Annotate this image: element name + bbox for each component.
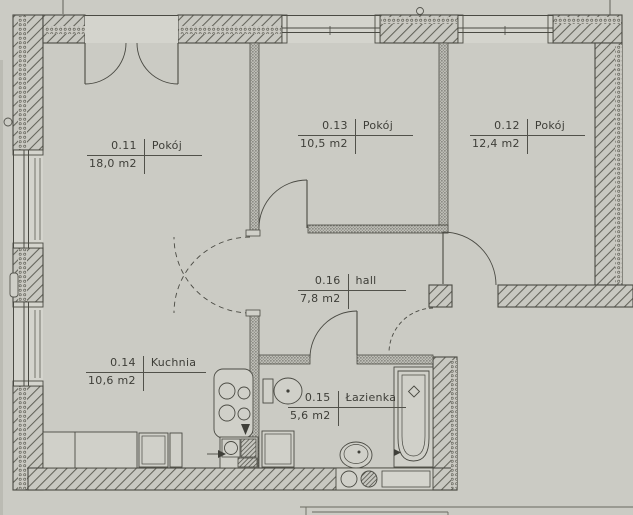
window-livingroom — [13, 150, 43, 248]
window-room-013 — [282, 15, 380, 43]
room-number: 0.14 — [86, 356, 144, 373]
room-number: 0.12 — [470, 119, 528, 136]
room-area: 7,8 m2 — [298, 291, 349, 309]
kitchen-sink — [220, 437, 258, 468]
partition-011-013 — [250, 43, 259, 231]
room-name: Pokój — [528, 119, 585, 136]
floorplan-page: 0.11 Pokój 18,0 m2 0.13 Pokój 10,5 m2 0.… — [0, 0, 633, 515]
kitchen-counter — [43, 432, 182, 468]
partition-013-012 — [439, 43, 448, 233]
room-area: 10,5 m2 — [298, 136, 356, 154]
room-area: 5,6 m2 — [288, 408, 339, 426]
window-kitchen — [13, 302, 43, 386]
floorplan-drawing — [0, 0, 633, 515]
room-area: 10,6 m2 — [86, 373, 144, 391]
room-label-015: 0.15 Łazienka 5,6 m2 — [288, 391, 406, 426]
room-label-016: 0.16 hall 7,8 m2 — [298, 274, 406, 309]
room-name: hall — [349, 274, 406, 291]
room-area: 12,4 m2 — [470, 136, 528, 154]
wall-room012-bottom-stub — [429, 285, 452, 307]
room-number: 0.11 — [87, 139, 145, 156]
partition-bathroom-top-left — [259, 355, 310, 364]
partition-013-hall — [308, 225, 448, 233]
room-label-013: 0.13 Pokój 10,5 m2 — [298, 119, 413, 154]
wall-left-upper — [13, 15, 43, 150]
washbasin — [340, 442, 372, 468]
partition-bathroom-top-right — [357, 355, 433, 364]
room-number: 0.13 — [298, 119, 356, 136]
room-label-014: 0.14 Kuchnia 10,6 m2 — [86, 356, 206, 391]
room-name: Kuchnia — [144, 356, 207, 373]
room-label-011: 0.11 Pokój 18,0 m2 — [87, 139, 202, 174]
installation-shaft — [336, 468, 433, 490]
downpipe-icon-top — [417, 8, 424, 15]
page-left-edge-shadow — [0, 60, 3, 515]
room-name: Łazienka — [339, 391, 407, 408]
washing-machine — [262, 431, 294, 467]
room-number: 0.16 — [298, 274, 349, 291]
pipe-left — [10, 273, 18, 297]
room-area: 18,0 m2 — [87, 156, 145, 174]
opening-jamb-bottom — [246, 310, 260, 316]
room-label-012: 0.12 Pokój 12,4 m2 — [470, 119, 585, 154]
room-name: Pokój — [356, 119, 413, 136]
opening-jamb-top — [246, 230, 260, 236]
wall-room012-bottom — [498, 285, 633, 307]
window-room-012 — [458, 15, 553, 43]
room-number: 0.15 — [288, 391, 339, 408]
room-name: Pokój — [145, 139, 202, 156]
